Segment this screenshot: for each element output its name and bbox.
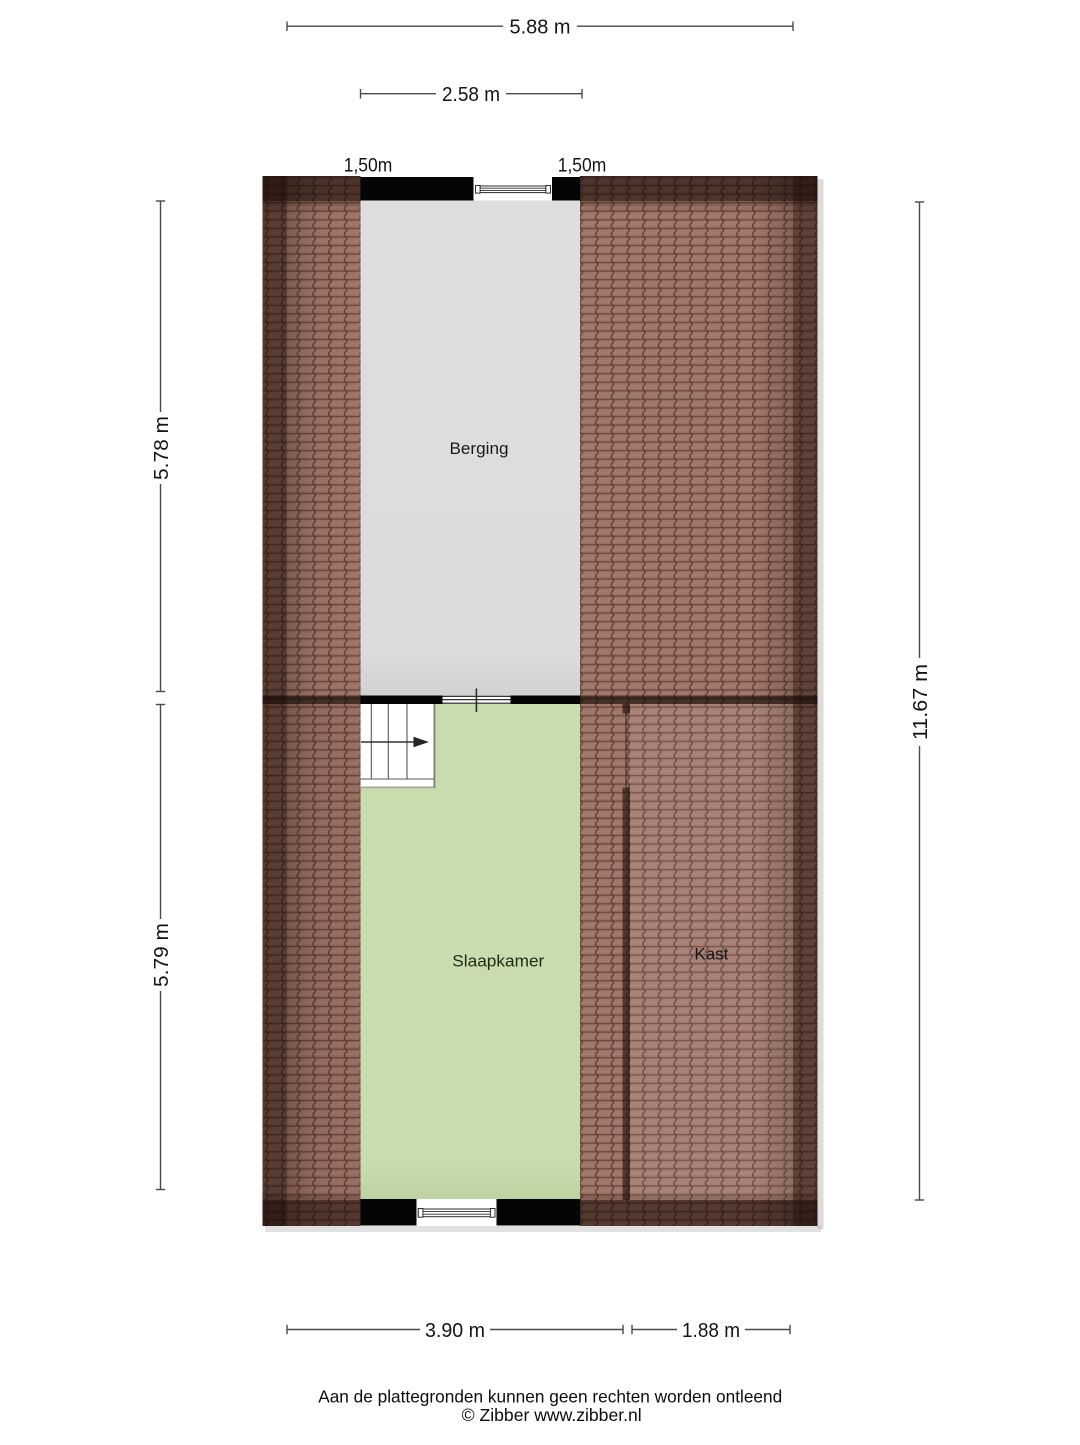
svg-text:3.90 m: 3.90 m bbox=[425, 1319, 485, 1342]
svg-text:11.67 m: 11.67 m bbox=[909, 664, 932, 740]
svg-text:Slaapkamer: Slaapkamer bbox=[452, 952, 544, 971]
svg-text:5.78 m: 5.78 m bbox=[150, 416, 173, 480]
svg-text:1,50m: 1,50m bbox=[558, 156, 607, 177]
svg-text:Aan de plattegronden kunnen ge: Aan de plattegronden kunnen geen rechten… bbox=[318, 1387, 782, 1407]
svg-text:Kast: Kast bbox=[694, 944, 728, 963]
svg-text:5.88 m: 5.88 m bbox=[510, 16, 571, 39]
svg-text:1,50m: 1,50m bbox=[344, 156, 393, 177]
svg-text:© Zibber www.zibber.nl: © Zibber www.zibber.nl bbox=[462, 1405, 642, 1425]
svg-text:5.79 m: 5.79 m bbox=[150, 923, 173, 987]
svg-text:1.88 m: 1.88 m bbox=[682, 1319, 740, 1342]
svg-text:2.58 m: 2.58 m bbox=[442, 83, 500, 106]
svg-text:Berging: Berging bbox=[450, 439, 509, 458]
